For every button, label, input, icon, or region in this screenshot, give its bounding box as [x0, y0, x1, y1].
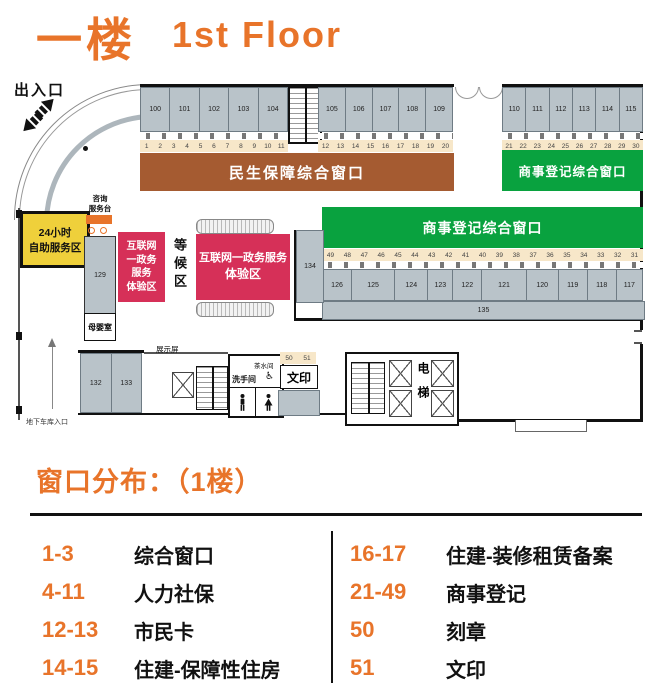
room: 124 — [395, 269, 428, 301]
room: 111 — [526, 87, 549, 132]
room-134: 134 — [296, 230, 324, 303]
window-number: 42 — [440, 249, 457, 261]
window-numbers-1-11: 1234567891011 — [140, 140, 288, 152]
room: 106 — [346, 87, 373, 132]
restroom-label: 洗手间 — [232, 374, 256, 385]
window-number: 19 — [423, 140, 438, 152]
window-number: 49 — [322, 249, 339, 261]
room: 133 — [112, 353, 143, 413]
window-number: 48 — [339, 249, 356, 261]
window-number: 33 — [592, 249, 609, 261]
room: 115 — [620, 87, 643, 132]
consult-desk — [86, 215, 112, 224]
staircase-mid — [196, 366, 228, 410]
legend-label: 住建-保障性住房 — [134, 654, 281, 683]
window-number: 50 — [280, 352, 298, 364]
wall — [640, 344, 643, 422]
legend-title: 窗口分布：（1楼） — [36, 460, 263, 499]
room: 112 — [550, 87, 573, 132]
legend-row: 51 文印 — [350, 652, 486, 684]
self-service-line: 自助服务区 — [23, 240, 87, 255]
room: 113 — [573, 87, 596, 132]
display-screen-label: 展示屏 — [156, 344, 179, 355]
elevator-lobby: 电梯 — [345, 352, 459, 426]
window-numbers-49-31: 49484746454443424140393837363534333231 — [322, 249, 643, 261]
window-number: 14 — [348, 140, 363, 152]
window-number: 51 — [298, 352, 316, 364]
window-number: 32 — [609, 249, 626, 261]
window-number: 10 — [261, 140, 274, 152]
window-number: 13 — [333, 140, 348, 152]
window-numbers-12-20: 121314151617181920 — [318, 140, 453, 152]
elevator-label: 电梯 — [415, 362, 432, 410]
window-number: 40 — [474, 249, 491, 261]
rooms-top-b: 105106107108109 — [318, 87, 453, 132]
waiting-area-label: 等候区 — [170, 238, 189, 292]
room-gray — [278, 390, 320, 416]
legend-range: 16-17 — [350, 541, 446, 567]
window-number: 15 — [363, 140, 378, 152]
escalator-icon — [196, 219, 274, 234]
legend-range: 14-15 — [42, 655, 134, 681]
room: 119 — [559, 269, 588, 301]
window-number: 5 — [194, 140, 207, 152]
desk-stool-icon — [88, 227, 95, 234]
wall-tick — [16, 406, 22, 414]
counter-strip — [318, 133, 453, 139]
legend-range: 4-11 — [42, 579, 134, 605]
room: 100 — [140, 87, 170, 132]
counter-strip — [140, 133, 288, 139]
window-number: 3 — [167, 140, 180, 152]
internet-zone-small: 互联网 一政务 服务 体验区 — [118, 232, 165, 302]
window-number: 2 — [153, 140, 166, 152]
room: 108 — [399, 87, 426, 132]
wall — [255, 387, 256, 416]
window-number: 31 — [626, 249, 643, 261]
wheelchair-icon: ♿ — [265, 371, 274, 382]
window-number: 47 — [356, 249, 373, 261]
counter-strip — [322, 262, 643, 268]
window-number: 20 — [438, 140, 453, 152]
window-number: 38 — [508, 249, 525, 261]
banner-commerce-mid: 商事登记综合窗口 — [322, 207, 643, 248]
window-number: 18 — [408, 140, 423, 152]
legend-range: 12-13 — [42, 617, 134, 643]
staircase-lobby — [351, 362, 385, 414]
legend-label: 综合窗口 — [134, 540, 214, 569]
tea-room-label: 茶水间 — [254, 360, 274, 370]
legend-row: 1-3 综合窗口 — [42, 538, 214, 570]
banner-commerce-top: 商事登记综合窗口 — [502, 150, 643, 191]
rooms-bottom: 132133 — [80, 353, 142, 413]
window-number: 36 — [542, 249, 559, 261]
rooms-mid: 126125124123122121120119118117 — [322, 269, 643, 301]
window-number: 34 — [575, 249, 592, 261]
garage-arrow-icon — [48, 338, 56, 347]
room: 105 — [318, 87, 346, 132]
internet-zone-large: 互联网一政务服务 体验区 — [196, 234, 290, 300]
room: 110 — [502, 87, 526, 132]
escalator-icon — [196, 302, 274, 317]
desk-stool-icon — [100, 227, 107, 234]
legend-divider — [331, 531, 333, 683]
legend-label: 住建-装修租赁备案 — [446, 540, 613, 569]
elevator-shaft-icon — [431, 360, 454, 387]
room: 121 — [482, 269, 526, 301]
room: 126 — [322, 269, 352, 301]
legend-label: 人力社保 — [134, 578, 214, 607]
rooms-top-c: 110111112113114115 — [502, 87, 643, 132]
floor-plan-page: 一楼 1st Floor 出入口 — [0, 0, 654, 696]
page-title-en: 1st Floor — [172, 14, 342, 56]
window-number: 17 — [393, 140, 408, 152]
print-window-numbers: 5051 — [280, 352, 316, 364]
legend-range: 51 — [350, 655, 446, 681]
legend-row: 16-17 住建-装修租赁备案 — [350, 538, 613, 570]
legend-row: 50 刻章 — [350, 614, 486, 646]
wall-tick — [16, 332, 22, 340]
window-number: 8 — [234, 140, 247, 152]
window-number: 4 — [180, 140, 193, 152]
room: 123 — [428, 269, 453, 301]
legend-label: 刻章 — [446, 616, 486, 645]
print-room: 文印 — [280, 365, 318, 389]
room: 107 — [373, 87, 400, 132]
room-129: 129 — [84, 236, 116, 315]
window-number: 41 — [457, 249, 474, 261]
window-number: 12 — [318, 140, 333, 152]
room: 114 — [596, 87, 619, 132]
legend-label: 市民卡 — [134, 616, 194, 645]
female-icon — [263, 394, 274, 416]
room: 103 — [229, 87, 258, 132]
window-number: 1 — [140, 140, 153, 152]
room: 122 — [453, 269, 482, 301]
legend-label: 商事登记 — [446, 578, 526, 607]
room-135: 135 — [322, 301, 645, 320]
self-service-line: 24小时 — [23, 225, 87, 240]
window-number: 9 — [248, 140, 261, 152]
wall-niche — [515, 420, 587, 432]
mother-baby-room: 母婴室 — [84, 313, 116, 341]
door-tick — [634, 342, 642, 344]
window-number: 16 — [378, 140, 393, 152]
entrance-label: 出入口 — [14, 79, 65, 100]
elevator-shaft-icon — [172, 372, 194, 398]
door-arc-icon — [455, 87, 479, 99]
legend-range: 21-49 — [350, 579, 446, 605]
counter-strip — [502, 133, 643, 139]
legend-row: 12-13 市民卡 — [42, 614, 194, 646]
window-number: 35 — [558, 249, 575, 261]
room: 102 — [200, 87, 229, 132]
window-number: 7 — [221, 140, 234, 152]
legend-row: 21-49 商事登记 — [350, 576, 526, 608]
legend-range: 1-3 — [42, 541, 134, 567]
wall — [230, 387, 282, 388]
elevator-shaft-icon — [389, 390, 412, 417]
rooms-top-a: 100101102103104 — [140, 87, 288, 132]
window-number: 44 — [406, 249, 423, 261]
restroom-block: 茶水间 洗手间 ♿ — [228, 354, 284, 418]
window-number: 6 — [207, 140, 220, 152]
window-number: 45 — [390, 249, 407, 261]
banner-minsheng: 民生保障综合窗口 — [140, 153, 454, 191]
room: 104 — [259, 87, 288, 132]
elevator-shaft-icon — [431, 390, 454, 417]
page-title-zh: 一楼 — [36, 4, 136, 70]
room: 120 — [527, 269, 559, 301]
room: 101 — [170, 87, 199, 132]
window-number: 43 — [423, 249, 440, 261]
window-number: 11 — [275, 140, 288, 152]
male-icon — [238, 394, 247, 416]
elevator-shaft-icon — [389, 360, 412, 387]
staircase-top — [288, 86, 322, 144]
legend-row: 4-11 人力社保 — [42, 576, 214, 608]
room: 125 — [352, 269, 395, 301]
room: 109 — [426, 87, 453, 132]
garage-arrow-line — [52, 347, 54, 409]
legend-range: 50 — [350, 617, 446, 643]
window-number: 39 — [491, 249, 508, 261]
room: 118 — [588, 269, 617, 301]
legend-row: 14-15 住建-保障性住房 — [42, 652, 281, 684]
door-tick — [634, 330, 642, 332]
door-arc-icon — [479, 87, 503, 99]
self-service-zone: 24小时 自助服务区 — [20, 211, 90, 268]
column-dot — [83, 146, 88, 151]
room: 132 — [80, 353, 112, 413]
window-number: 37 — [525, 249, 542, 261]
consult-desk-label: 咨询 服务台 — [82, 194, 118, 214]
garage-entrance-label: 地下车库入口 — [26, 417, 68, 427]
legend-label: 文印 — [446, 654, 486, 683]
room: 117 — [617, 269, 643, 301]
legend-rule — [30, 513, 642, 516]
window-number: 46 — [373, 249, 390, 261]
